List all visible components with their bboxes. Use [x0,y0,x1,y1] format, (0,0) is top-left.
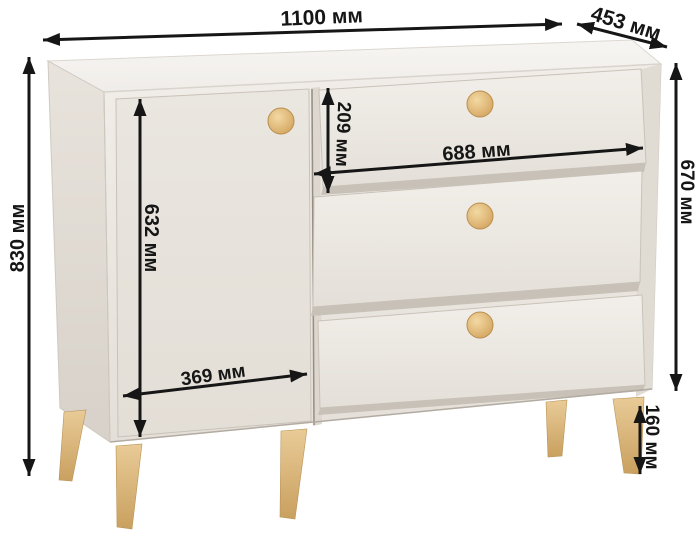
drawer-2-knob [467,203,493,229]
dim-leg-height-label: 160 мм [641,404,662,469]
dim-body-height-label: 670 мм [676,159,697,224]
dim-overall-height-label: 830 мм [7,204,29,273]
drawer-1-knob [467,91,493,117]
dim-top-drawer-height-label: 209 мм [331,101,354,167]
drawer-3-knob [467,312,493,338]
door-knob [268,108,294,134]
diagram-canvas: 1100 мм 453 мм 830 мм 632 мм 209 мм 688 … [0,0,700,540]
dim-overall-width-label: 1100 мм [280,4,363,31]
dim-door-height-label: 632 мм [140,204,162,273]
